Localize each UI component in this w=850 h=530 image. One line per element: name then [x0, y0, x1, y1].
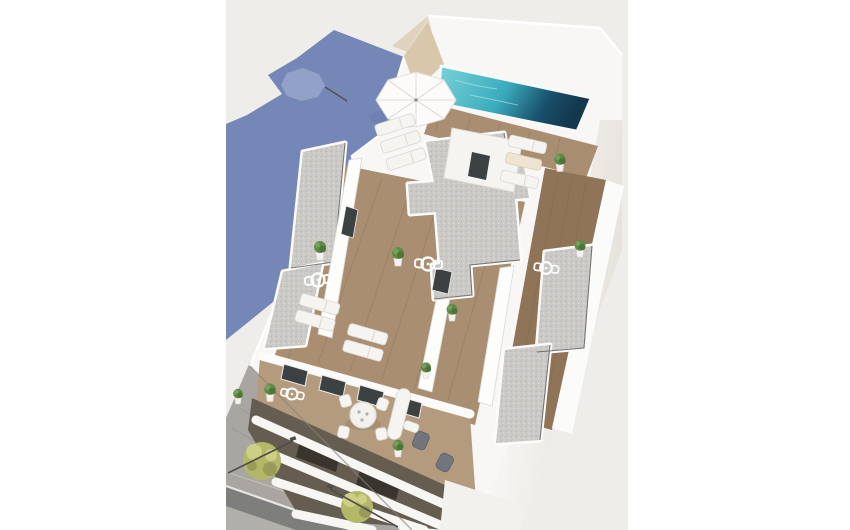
- gravel-roof: [496, 345, 550, 443]
- street-tree: [243, 442, 281, 480]
- dining-table: [350, 402, 376, 428]
- architectural-render: [0, 0, 850, 530]
- street-tree: [341, 491, 373, 523]
